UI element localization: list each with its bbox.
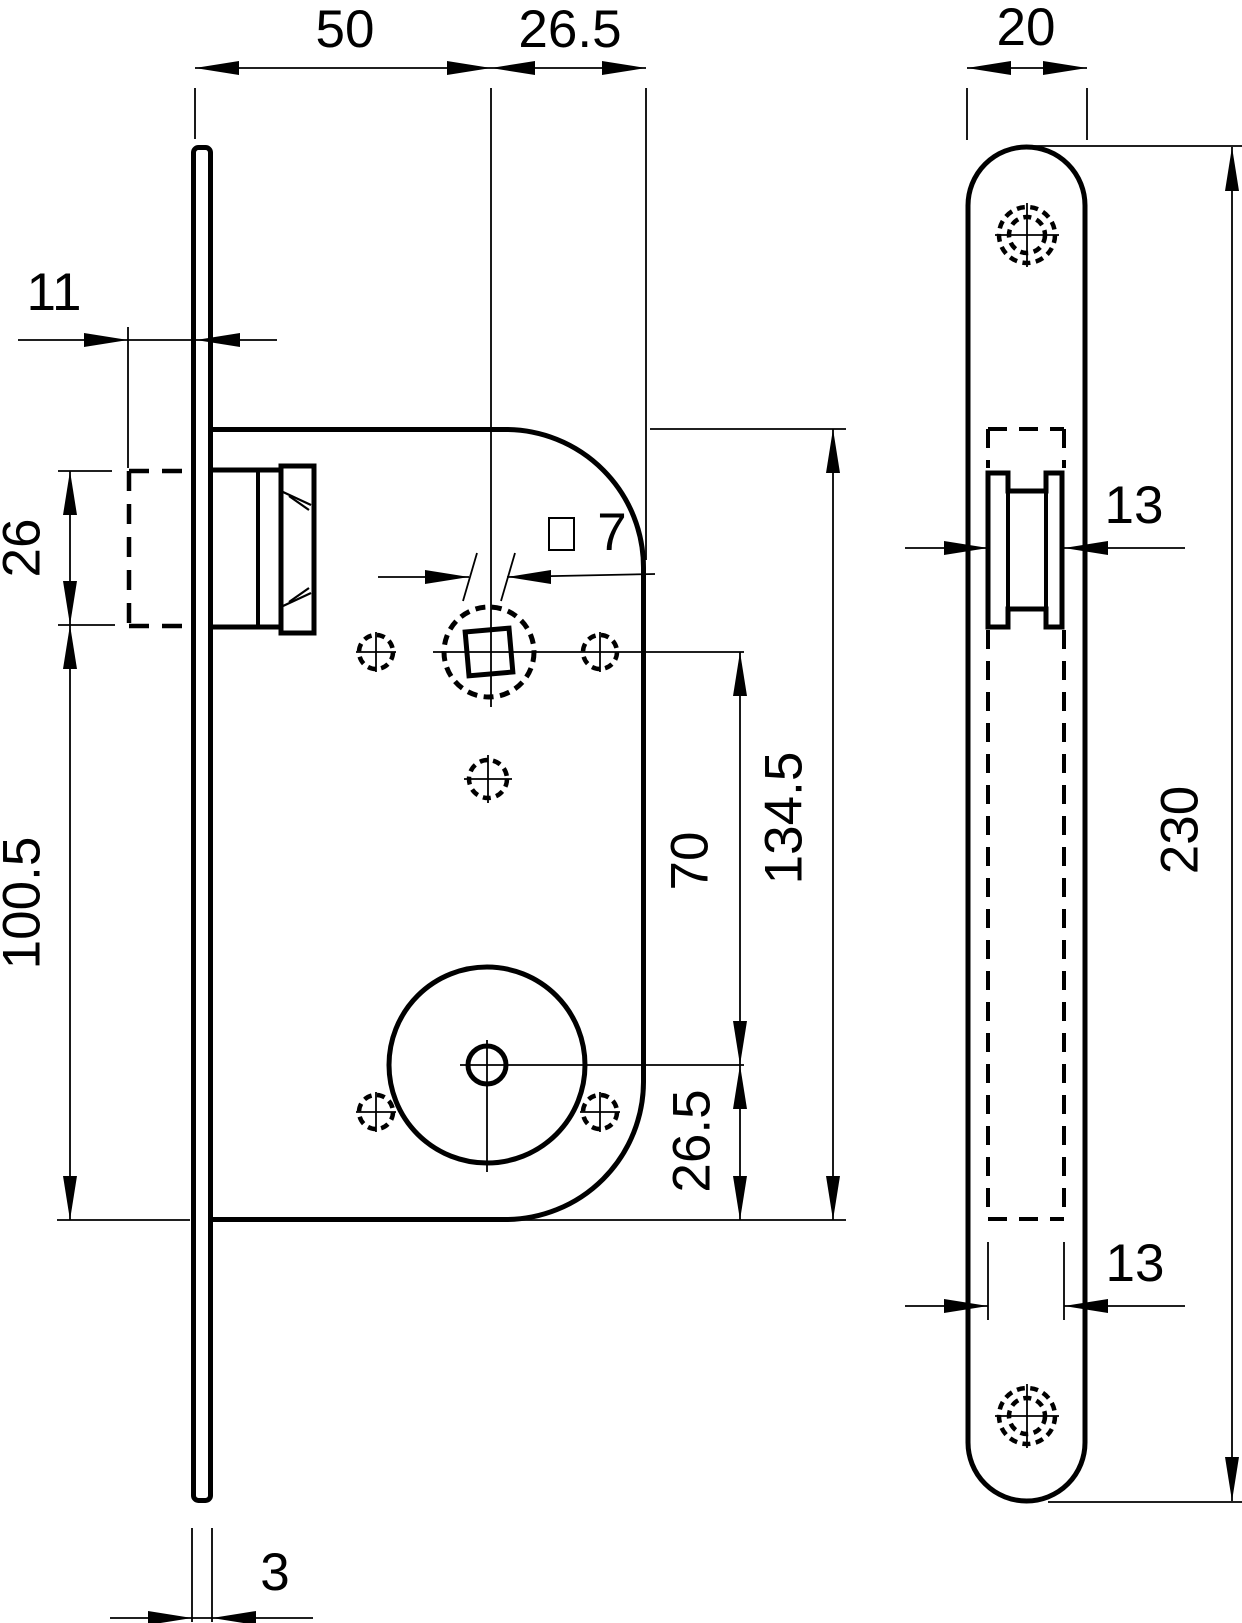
lock-technical-drawing: 50 26.5 20 11 26 100.5 — [0, 0, 1242, 1623]
latch-head — [281, 466, 314, 633]
dim-label-cylinder-to-bottom: 26.5 — [663, 1089, 722, 1192]
dim-label-follower-to-cylinder: 70 — [661, 832, 720, 891]
arrowhead — [84, 333, 128, 347]
arrowhead — [63, 625, 77, 669]
arrowhead — [196, 333, 240, 347]
fixing-holes — [356, 632, 620, 1132]
latch-bevel-top — [283, 492, 311, 505]
faceplate-side — [194, 148, 211, 1501]
dim-label-case-width-bottom: 13 — [1106, 1234, 1165, 1293]
latch-front-outline — [988, 473, 1062, 627]
arrowhead — [1225, 147, 1239, 191]
latch-bolt-side — [212, 466, 314, 633]
arrowhead — [733, 1065, 747, 1109]
dim-label-case-width-top: 13 — [1105, 476, 1164, 535]
arrowhead — [63, 1176, 77, 1220]
arrowhead — [1225, 1457, 1239, 1501]
arrowhead — [602, 61, 646, 75]
faceplate-front — [968, 147, 1085, 1501]
arrowhead — [826, 429, 840, 473]
arrowhead — [447, 61, 491, 75]
dim-label-faceplate-thickness: 3 — [260, 1543, 289, 1602]
arrowhead — [425, 570, 469, 584]
latch-body-edges — [212, 470, 281, 627]
dim-label-faceplate-length: 230 — [1151, 786, 1210, 874]
arrowhead — [63, 471, 77, 515]
front-view — [968, 147, 1085, 1501]
drawing-canvas: 50 26.5 20 11 26 100.5 — [0, 0, 1242, 1623]
dim-label-follower-to-edge: 26.5 — [518, 0, 621, 59]
case-hidden-lines — [988, 429, 1064, 1219]
arrowhead — [733, 1176, 747, 1220]
latch-bevel-bottom — [283, 593, 311, 606]
arrowhead — [148, 1611, 192, 1623]
dimension-annotations: 50 26.5 20 11 26 100.5 — [0, 0, 1242, 1623]
arrowhead — [967, 61, 1011, 75]
latch-bolt-extended-dashed — [129, 471, 193, 626]
arrowhead — [212, 1611, 256, 1623]
dim-label-case-length: 134.5 — [755, 752, 814, 885]
side-view — [129, 88, 744, 1501]
arrowhead — [826, 1176, 840, 1220]
arrowhead — [733, 652, 747, 696]
faceplate-screw-holes — [995, 203, 1059, 1448]
square-symbol — [549, 518, 574, 550]
arrowhead — [491, 61, 535, 75]
arrowhead — [507, 570, 551, 584]
arrowhead — [195, 61, 239, 75]
dim-label-faceplate-width: 20 — [997, 0, 1056, 57]
dim-label-spindle: 7 — [597, 503, 626, 562]
dim-label-latch-height: 26 — [0, 519, 52, 578]
dim-label-latch-to-bottom: 100.5 — [0, 837, 52, 970]
arrowhead — [733, 1021, 747, 1065]
dim-label-backset: 50 — [316, 0, 375, 59]
arrowhead — [63, 581, 77, 625]
dim-label-latch-protrusion: 11 — [26, 263, 81, 322]
latch-bolt-front — [988, 473, 1062, 627]
arrowhead — [1043, 61, 1087, 75]
